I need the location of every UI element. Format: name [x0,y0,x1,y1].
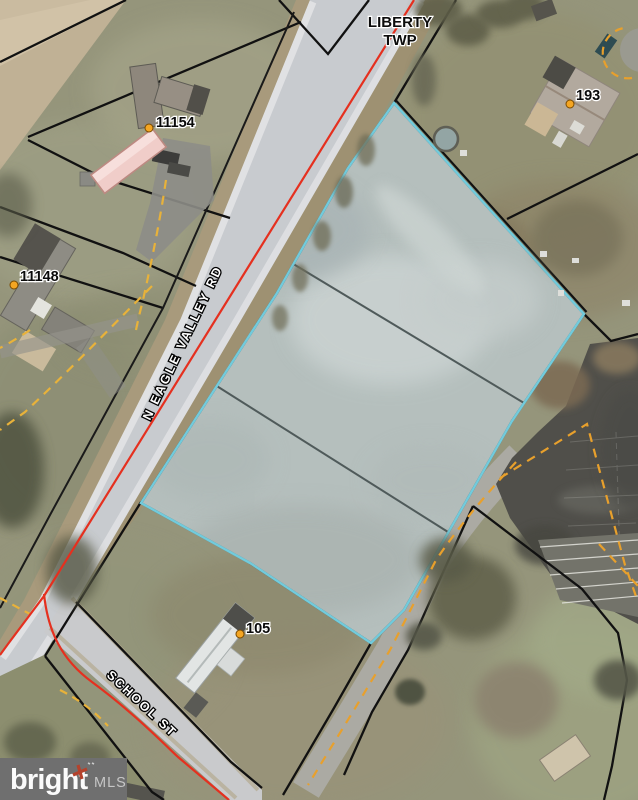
svg-text:193: 193 [576,88,600,104]
svg-text:MLS: MLS [94,775,127,791]
svg-text:11148: 11148 [20,269,59,285]
svg-text:105: 105 [246,621,270,637]
svg-text:11154: 11154 [156,115,195,131]
svg-text:bright: bright [10,764,88,796]
svg-text:LIBERTY: LIBERTY [368,14,432,31]
svg-text:TWP: TWP [383,32,416,49]
